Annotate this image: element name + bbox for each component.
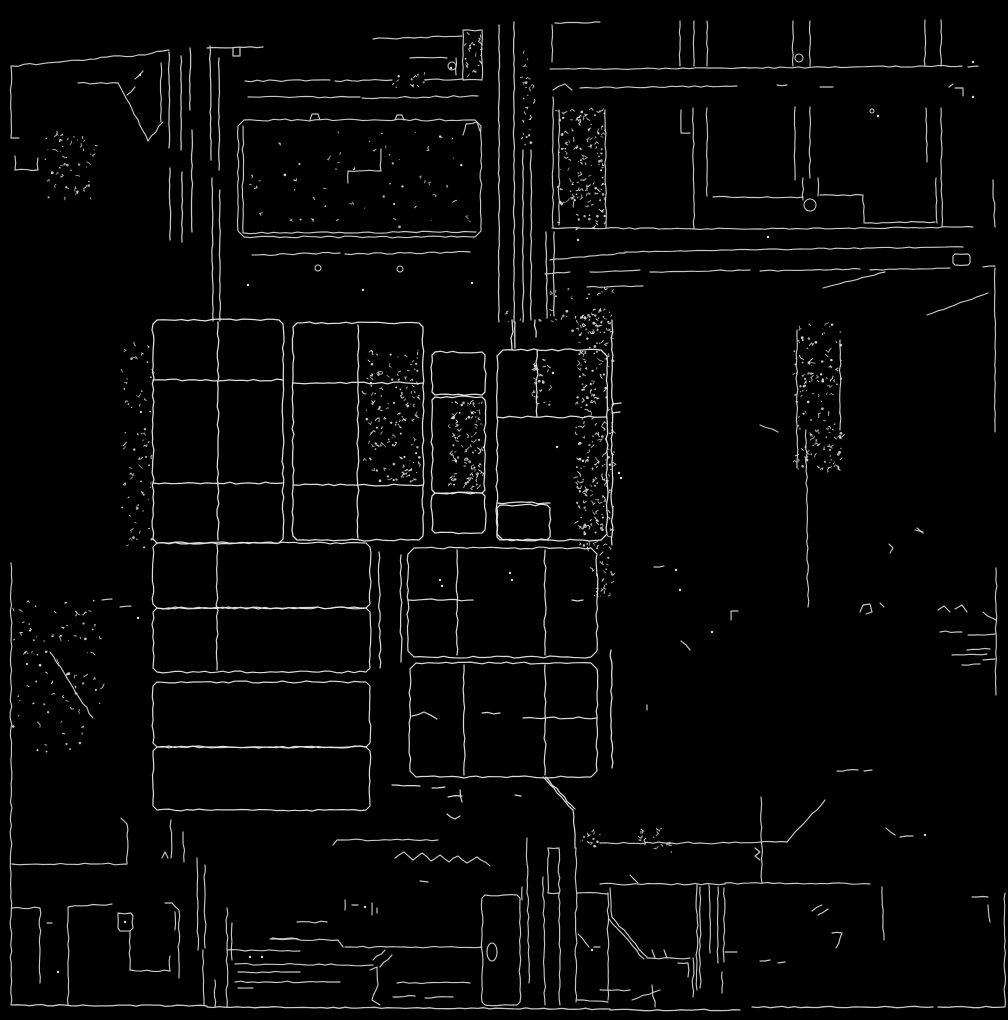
warehouse-roof-rect-speckle-field: [465, 33, 483, 78]
bottom-left-buildings: [67, 820, 300, 1007]
mid-right-sparse-marks: [647, 528, 923, 771]
warehouse-roof-rect-speckle-field: [250, 131, 471, 228]
market-block-grid-speckle-field: [590, 546, 615, 597]
top-right-buildings-speckle-field: [555, 108, 606, 230]
market-block-lower-speckle-field: [127, 523, 153, 549]
bottom-center-structures-speckle-field: [581, 830, 601, 847]
left-side-tree-and-border: [10, 563, 139, 1005]
right-speckle-strip-speckle-field: [793, 323, 845, 473]
right-road-lines-speckle-field: [566, 309, 613, 334]
top-left-roof-lines: [10, 50, 169, 200]
market-block-grid-speckle-field: [532, 359, 552, 406]
warehouse-roof-rect: [237, 30, 482, 291]
right-speckle-strip: [760, 323, 997, 696]
top-left-roof-lines-speckle-field: [45, 131, 98, 200]
road-vertical-lines-speckle-field: [521, 51, 536, 145]
right-road-lines-speckle-field: [550, 288, 613, 299]
left-side-tree-and-border-speckle-field: [12, 600, 104, 753]
bottom-right-structures-speckle-field: [638, 828, 672, 852]
warehouse-roof-rect-speckle-field: [392, 72, 426, 88]
market-block-grid-speckle-field: [505, 310, 605, 323]
market-block-grid: [152, 310, 622, 769]
road-vertical-lines: [169, 22, 555, 322]
bottom-center-structures: [231, 830, 608, 1006]
market-block-grid-speckle-field: [362, 350, 421, 483]
market-block-grid-speckle-field: [448, 400, 484, 489]
bottom-right-structures: [600, 797, 1005, 1007]
canny-edge-image: [0, 0, 1008, 1020]
top-right-buildings: [550, 20, 995, 241]
edge-map-screenshot: [0, 0, 1008, 1020]
market-block-lower-speckle-field: [121, 342, 154, 516]
market-block-lower: [121, 342, 598, 848]
